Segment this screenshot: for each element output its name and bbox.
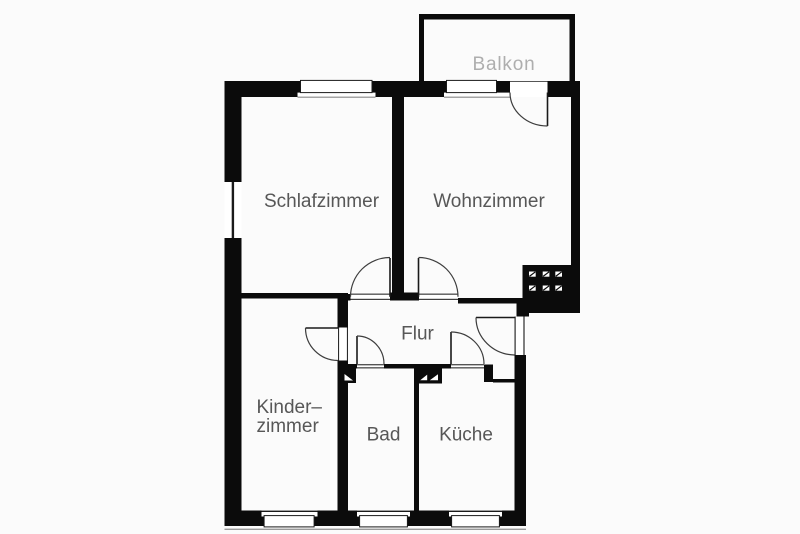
svg-text:Bad: Bad — [367, 425, 401, 446]
svg-text:Kinder–: Kinder– — [257, 397, 323, 418]
svg-text:zimmer: zimmer — [257, 416, 320, 437]
svg-text:Küche: Küche — [439, 425, 493, 446]
svg-text:Wohnzimmer: Wohnzimmer — [433, 191, 545, 212]
svg-text:Balkon: Balkon — [473, 54, 536, 75]
svg-text:Flur: Flur — [401, 324, 434, 345]
svg-text:Schlafzimmer: Schlafzimmer — [264, 191, 380, 212]
